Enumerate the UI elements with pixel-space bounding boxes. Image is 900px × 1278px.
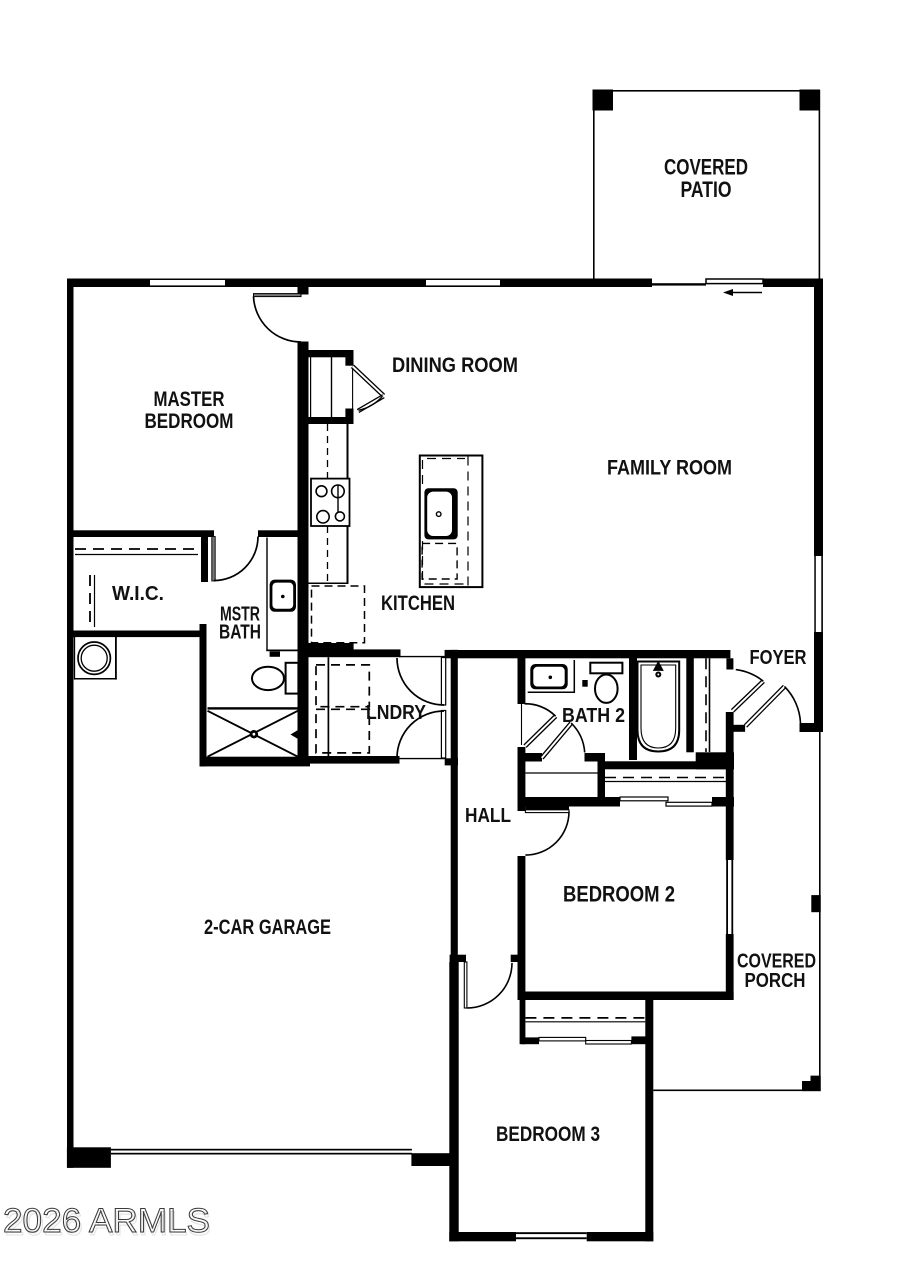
svg-text:KITCHEN: KITCHEN [381,592,455,615]
svg-text:HALL: HALL [465,805,511,827]
svg-text:BEDROOM 3: BEDROOM 3 [496,1123,600,1146]
svg-text:2-CAR GARAGE: 2-CAR GARAGE [204,916,331,939]
svg-text:W.I.C.: W.I.C. [112,583,164,605]
svg-text:PORCH: PORCH [745,970,806,992]
svg-text:BEDROOM 2: BEDROOM 2 [563,882,675,907]
svg-text:BATH: BATH [219,622,261,644]
svg-text:FOYER: FOYER [750,647,807,669]
svg-text:LNDRY: LNDRY [366,702,427,724]
svg-text:BEDROOM: BEDROOM [145,410,234,433]
svg-text:FAMILY ROOM: FAMILY ROOM [607,457,732,480]
svg-text:MASTER: MASTER [154,388,225,411]
svg-text:2026 ARMLS: 2026 ARMLS [3,1202,210,1240]
svg-text:PATIO: PATIO [681,177,732,202]
svg-text:DINING ROOM: DINING ROOM [392,354,518,377]
svg-text:COVERED: COVERED [664,155,748,180]
